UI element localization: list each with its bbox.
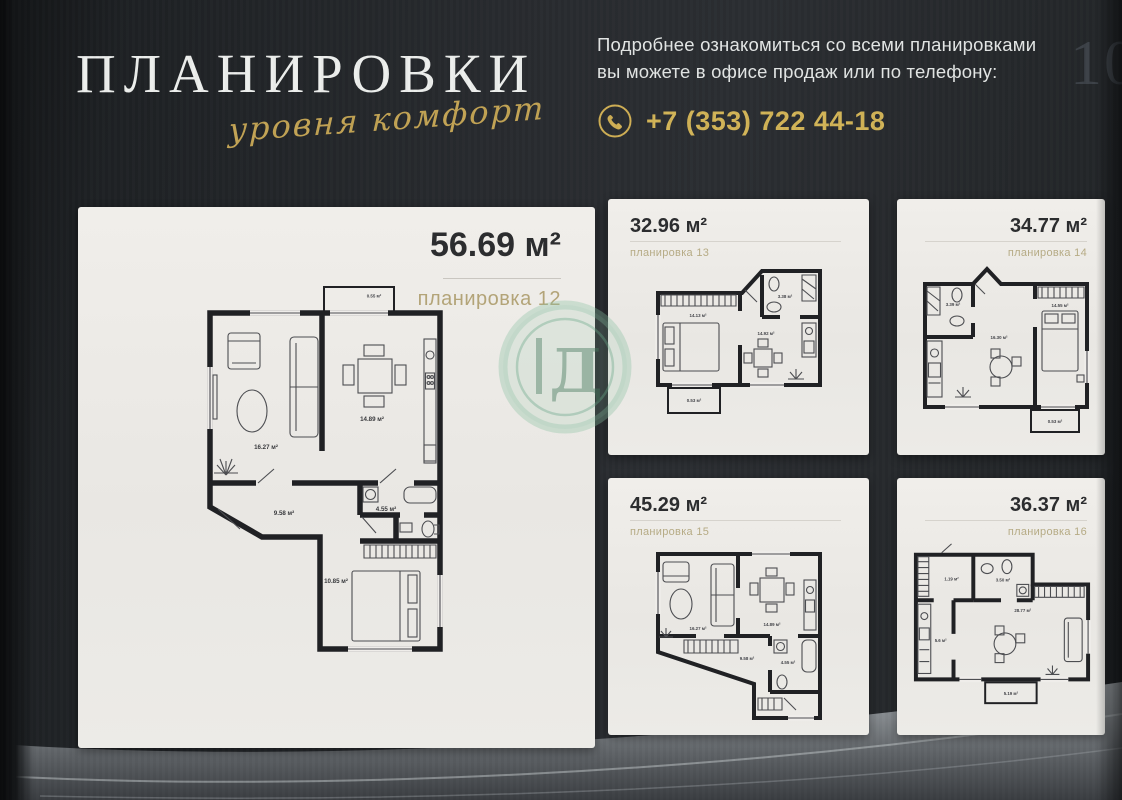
plan-name-label: планировка 14 — [1008, 247, 1087, 259]
shower-icon — [927, 287, 940, 315]
contact-info-line1: Подробнее ознакомиться со всеми планиров… — [597, 31, 1036, 58]
room-area-label: 5.19 м² — [1004, 691, 1019, 696]
tv-icon — [213, 375, 217, 419]
apartment-area-label: 45.29 м² — [630, 494, 707, 517]
pouf-icon — [670, 589, 692, 619]
room-area-label: 14.92 м² — [758, 331, 775, 336]
entry-hatch — [758, 698, 782, 710]
bathtub-icon — [404, 487, 436, 503]
plant-icon — [788, 369, 804, 379]
toilet-icon — [422, 521, 439, 537]
room-area-label: 5.6 м² — [935, 638, 947, 643]
divider-line — [925, 241, 1087, 242]
wardrobe-icon — [1038, 287, 1084, 298]
divider-line — [630, 520, 841, 521]
plan-name-label: планировка 13 — [630, 247, 709, 259]
bed-icon — [1042, 311, 1078, 371]
page-number: 10 — [1070, 26, 1122, 100]
room-area-label: 3.38 м² — [778, 294, 793, 299]
armchair-icon — [663, 562, 689, 582]
washer-icon — [1017, 584, 1029, 596]
brochure-page: ПЛАНИРОВКИ уровня комфорт Подробнее озна… — [0, 0, 1122, 800]
wardrobe-icon — [684, 640, 738, 653]
sink-icon — [950, 316, 964, 326]
room-area-label: 0.55 м² — [367, 294, 382, 299]
floorplan-drawing-main: 0.55 м² 16.27 м² 14.89 м² 9.58 м² 4.55 м… — [200, 283, 450, 657]
room-area-label: 0.53 м² — [687, 398, 702, 403]
wardrobe-icon — [918, 557, 929, 597]
wardrobe-icon — [1035, 586, 1084, 597]
dining-table-icon — [750, 568, 794, 612]
sofa-icon — [1064, 618, 1082, 662]
plan-name-label: планировка 15 — [630, 526, 709, 538]
sink-icon — [981, 564, 993, 574]
door-swing — [942, 544, 952, 553]
room-area-label: 0.53 м² — [1048, 419, 1063, 424]
door-swing — [745, 290, 757, 302]
dining-table-icon — [990, 349, 1021, 386]
kitchen-counter-icon — [424, 339, 436, 463]
door-swing — [784, 698, 796, 710]
plant-icon — [1046, 666, 1060, 675]
room-area-label: 10.85 м² — [324, 578, 348, 585]
floorplan-card-13: 32.96 м² планировка 13 14.13 м² 14.92 м²… — [608, 199, 869, 455]
kitchen-counter-icon — [918, 604, 931, 673]
phone-icon — [597, 103, 633, 139]
room-area-label: 28.77 м² — [1014, 608, 1031, 613]
divider-line — [443, 278, 561, 279]
floorplan-card-16: 36.37 м² планировка 16 1.19 м² 3.50 м² — [897, 478, 1105, 735]
floorplan-drawing-16: 1.19 м² 3.50 м² 28.77 м² 5.6 м² 5.19 м² — [908, 540, 1096, 708]
kitchen-counter-icon — [804, 580, 816, 630]
plan-name-label: планировка 16 — [1008, 526, 1087, 538]
door-swing — [975, 284, 985, 294]
room-area-label: 16.27 м² — [254, 444, 278, 451]
room-area-label: 3.39 м² — [946, 302, 961, 307]
apartment-area-label: 34.77 м² — [1010, 215, 1087, 238]
pouf-icon — [237, 390, 267, 432]
bathtub-icon — [802, 640, 816, 672]
room-area-label: 3.50 м² — [996, 577, 1011, 582]
room-area-label: 14.89 м² — [360, 416, 384, 423]
sink-icon — [400, 523, 412, 532]
toilet-icon — [769, 277, 779, 291]
divider-line — [630, 241, 841, 242]
contact-info-text: Подробнее ознакомиться со всеми планиров… — [597, 31, 1036, 85]
door-swings — [218, 469, 396, 533]
page-spine-shadow — [0, 0, 34, 800]
room-area-label: 9.58 м² — [274, 510, 294, 517]
dining-table-icon — [994, 626, 1025, 663]
room-area-label: 14.89 м² — [764, 622, 781, 627]
floorplan-drawing-13: 14.13 м² 14.92 м² 3.38 м² 0.53 м² — [650, 265, 828, 417]
sofa-icon — [290, 337, 318, 437]
bed-icon — [352, 571, 420, 641]
kitchen-counter-icon — [802, 323, 816, 357]
contact-info-line2: вы можете в офисе продаж или по телефону… — [597, 58, 1036, 85]
apartment-area-label: 32.96 м² — [630, 215, 707, 238]
wardrobe-icon — [364, 545, 436, 558]
kitchen-counter-icon — [927, 341, 942, 397]
room-area-label: 14.13 м² — [690, 313, 707, 318]
floorplan-card-main: 56.69 м² планировка 12 — [78, 207, 595, 748]
toilet-icon — [777, 675, 787, 689]
sofa-icon — [711, 564, 734, 626]
toilet-icon — [1002, 560, 1012, 574]
room-area-label: 16.27 м² — [690, 626, 707, 631]
plant-icon — [955, 387, 971, 397]
washer-icon — [363, 487, 378, 502]
room-area-label: 4.55 м² — [376, 506, 396, 513]
floorplan-drawing-15: 16.27 м² 14.89 м² 9.58 м² 4.55 м² — [650, 540, 828, 724]
apartment-area-label: 36.37 м² — [1010, 494, 1087, 517]
toilet-icon — [952, 288, 962, 302]
shower-icon — [802, 275, 816, 301]
wardrobe-icon — [661, 295, 736, 306]
balcony-outline — [324, 287, 394, 313]
sink-icon — [767, 302, 781, 312]
room-area-label: 14.55 м² — [1052, 303, 1069, 308]
bed-icon — [663, 323, 719, 371]
apartment-area-label: 56.69 м² — [430, 226, 561, 265]
dining-table-icon — [343, 345, 406, 407]
nightstand-icon — [1077, 375, 1084, 382]
floorplan-card-14: 34.77 м² планировка 14 3.39 м² 16.30 м² … — [897, 199, 1105, 455]
divider-line — [925, 520, 1087, 521]
room-area-label: 1.19 м² — [944, 576, 959, 581]
plant-icon — [214, 459, 238, 475]
room-area-label: 4.55 м² — [781, 660, 796, 665]
phone-number: +7 (353) 722 44-18 — [646, 106, 885, 137]
room-area-label: 9.58 м² — [740, 656, 755, 661]
washer-icon — [774, 640, 787, 653]
floorplan-card-15: 45.29 м² планировка 15 16.27 м² 14.89 м² — [608, 478, 869, 735]
armchair-icon — [228, 333, 260, 369]
room-area-label: 16.30 м² — [991, 335, 1008, 340]
dining-table-icon — [744, 339, 782, 377]
phone-block: +7 (353) 722 44-18 — [597, 103, 885, 139]
floorplan-drawing-14: 3.39 м² 16.30 м² 14.55 м² 0.53 м² — [917, 259, 1091, 437]
